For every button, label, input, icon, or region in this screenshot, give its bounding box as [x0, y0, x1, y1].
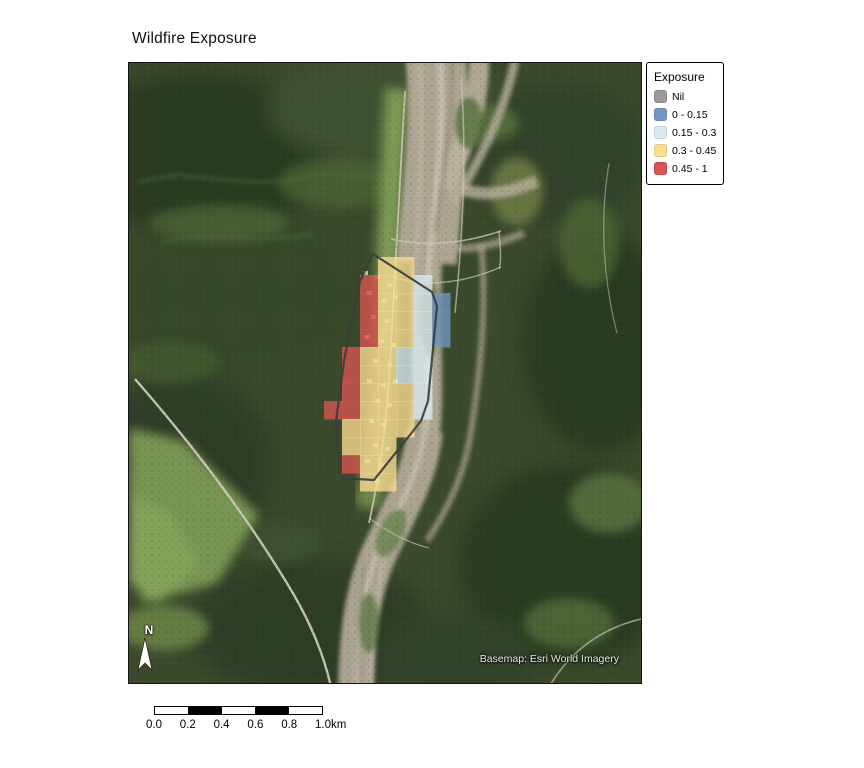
map-view[interactable]: N Basemap: Esri World Imagery	[128, 62, 642, 684]
legend-swatch	[654, 144, 667, 157]
legend-swatch	[654, 162, 667, 175]
north-arrow-icon	[136, 637, 154, 673]
exposure-cell-y	[396, 329, 415, 348]
legend-item: 0.45 - 1	[654, 162, 717, 175]
exposure-cell-lb	[396, 347, 415, 366]
legend-item: 0.3 - 0.45	[654, 144, 717, 157]
scale-bar-segment	[188, 707, 221, 714]
legend-items: Nil0 - 0.150.15 - 0.30.3 - 0.450.45 - 1	[654, 90, 717, 175]
exposure-cell-y	[378, 473, 397, 492]
scale-bar-segments	[154, 706, 323, 715]
legend-swatch	[654, 126, 667, 139]
legend-swatch	[654, 108, 667, 121]
exposure-cell-lb	[414, 329, 433, 348]
exposure-cell-lb	[414, 293, 433, 312]
exposure-cell-y	[396, 293, 415, 312]
exposure-cell-y	[360, 437, 379, 456]
satellite-basemap	[129, 63, 641, 683]
legend-item-label: 0.3 - 0.45	[672, 145, 716, 157]
scale-bar-segment	[255, 707, 288, 714]
legend-item-label: Nil	[672, 91, 684, 103]
legend-item-label: 0.15 - 0.3	[672, 127, 716, 139]
exposure-cell-y	[360, 383, 379, 402]
exposure-cell-y	[378, 365, 397, 384]
exposure-cell-y	[378, 347, 397, 366]
scale-tick-label: 1.0	[315, 719, 331, 731]
north-label: N	[136, 624, 162, 636]
exposure-cell-y	[396, 311, 415, 330]
scale-tick-label: 0.8	[281, 719, 297, 731]
legend-item: 0 - 0.15	[654, 108, 717, 121]
exposure-cell-y	[360, 365, 379, 384]
page: Wildfire Exposure	[0, 0, 864, 768]
exposure-cell-y	[378, 311, 397, 330]
exposure-cell-r	[360, 275, 379, 294]
legend: Exposure Nil0 - 0.150.15 - 0.30.3 - 0.45…	[646, 62, 724, 185]
scale-bar-labels: 0.00.20.40.60.81.0km	[154, 719, 374, 734]
north-arrow: N	[136, 624, 162, 673]
exposure-cell-y	[378, 419, 397, 438]
exposure-cell-y	[378, 293, 397, 312]
exposure-cell-y	[378, 437, 397, 456]
exposure-cell-lb	[396, 365, 415, 384]
scale-tick-label: 0.0	[146, 719, 162, 731]
legend-title: Exposure	[654, 70, 717, 84]
scale-tick-label: 0.4	[214, 719, 230, 731]
exposure-cell-y	[360, 455, 379, 474]
exposure-cell-r	[342, 383, 361, 402]
scale-tick-label: 0.2	[180, 719, 196, 731]
exposure-cell-y	[360, 419, 379, 438]
exposure-cell-y	[378, 329, 397, 348]
legend-item-label: 0 - 0.15	[672, 109, 708, 121]
exposure-cell-y	[396, 401, 415, 420]
scale-tick-label: 0.6	[247, 719, 263, 731]
scale-bar-segment	[289, 707, 322, 714]
basemap-attribution: Basemap: Esri World Imagery	[480, 653, 619, 665]
exposure-cell-y	[360, 473, 379, 492]
scale-bar-segment	[155, 707, 188, 714]
exposure-cell-y	[378, 275, 397, 294]
exposure-cell-r	[324, 401, 343, 420]
scale-unit-label: km	[331, 719, 346, 731]
exposure-cell-r	[360, 329, 379, 348]
exposure-cell-y	[342, 437, 361, 456]
legend-item: Nil	[654, 90, 717, 103]
exposure-cell-r	[342, 401, 361, 420]
scale-bar: 0.00.20.40.60.81.0km	[154, 706, 374, 738]
exposure-cell-y	[396, 257, 415, 276]
legend-item-label: 0.45 - 1	[672, 163, 708, 175]
page-title: Wildfire Exposure	[132, 30, 257, 48]
exposure-cell-r	[360, 293, 379, 312]
exposure-cell-y	[360, 347, 379, 366]
exposure-cell-y	[378, 401, 397, 420]
exposure-cell-lb	[414, 347, 433, 366]
exposure-cell-y	[342, 419, 361, 438]
exposure-cell-y	[396, 419, 415, 438]
exposure-cell-r	[342, 455, 361, 474]
exposure-cell-y	[396, 383, 415, 402]
legend-item: 0.15 - 0.3	[654, 126, 717, 139]
exposure-cell-r	[342, 365, 361, 384]
scale-bar-segment	[222, 707, 255, 714]
exposure-cell-r	[360, 311, 379, 330]
exposure-cell-lb	[414, 311, 433, 330]
exposure-cell-y	[360, 401, 379, 420]
exposure-cell-y	[378, 383, 397, 402]
legend-swatch	[654, 90, 667, 103]
